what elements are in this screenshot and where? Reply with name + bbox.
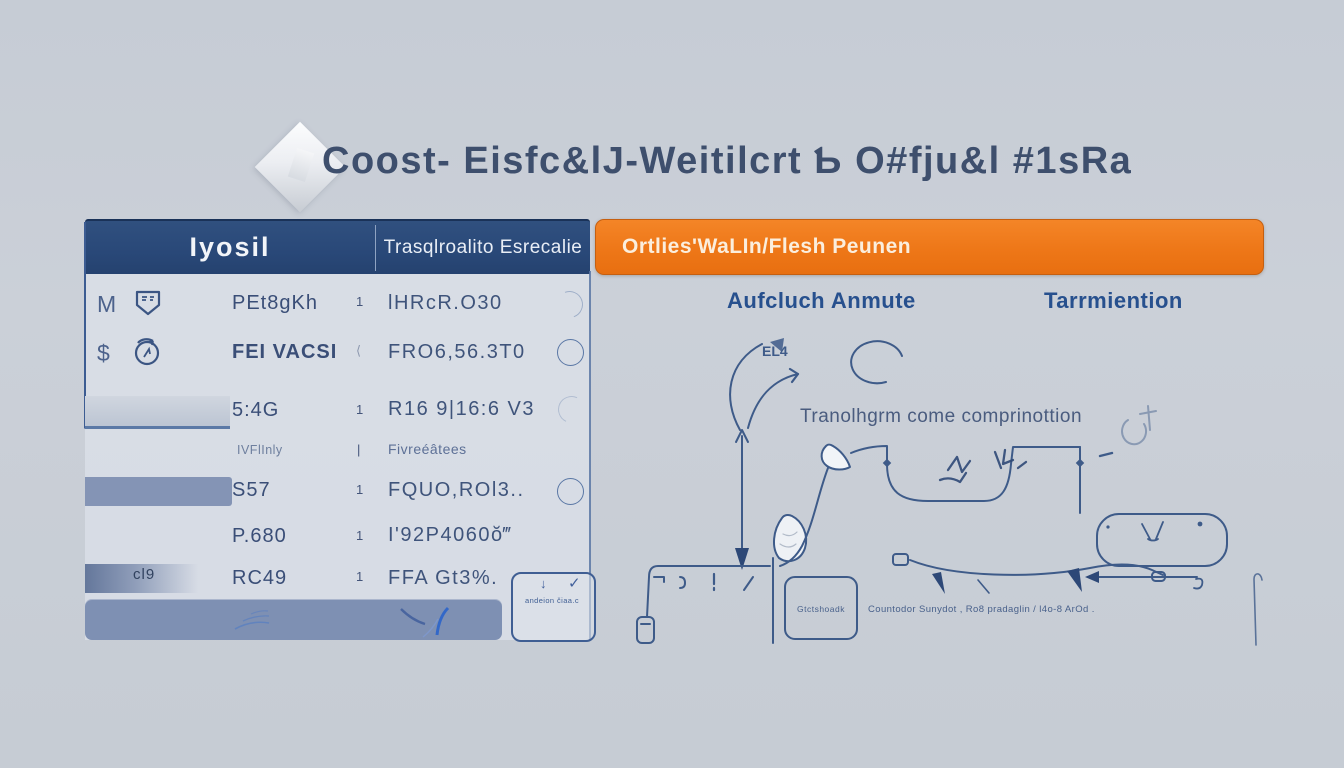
row-value: Fivreéâtees: [388, 441, 467, 457]
ink-scribbles: [940, 450, 1026, 482]
row-sep: 1: [356, 528, 363, 543]
note-box-text: andeion čiaa.c: [513, 596, 591, 605]
column-header-1: Aufcluch Anmute: [727, 288, 916, 314]
wavy-connector: [893, 554, 1163, 594]
open-circle: [851, 341, 902, 383]
check-icon: ✓: [568, 574, 581, 592]
pin-line: [1254, 574, 1262, 645]
timer-icon: [130, 335, 164, 369]
row5-radio[interactable]: [557, 478, 584, 505]
row5-progress-bar: [85, 477, 232, 506]
row-sep: 1: [356, 482, 363, 497]
row3-progress-bar: [85, 396, 230, 429]
row7-bar-label: cl9: [133, 566, 155, 583]
row2-radio[interactable]: [557, 339, 584, 366]
row-sep: ⟨: [356, 343, 361, 359]
row-value: FFA Gt3%.: [388, 567, 498, 590]
row1-letter: M: [97, 291, 116, 318]
row-name: IVFlInly: [237, 443, 283, 457]
scribble-icon: [1122, 406, 1156, 444]
under-pill-line: [1085, 571, 1202, 589]
row-value: FQUO,ROl3..: [388, 479, 525, 502]
row-name: 5:4G: [232, 399, 279, 422]
table-header: Iyosil Trasqlroalito Esrecalie: [85, 219, 590, 274]
diagram-footnote: Countodor Sunydot , Ro8 pradaglin / l4o-…: [868, 604, 1095, 615]
row-sep: 1: [356, 402, 363, 417]
row2-letter: $: [97, 340, 110, 367]
down-arrow-icon: ↓: [540, 576, 547, 591]
table-header-right: Trasqlroalito Esrecalie: [376, 237, 590, 259]
teardrop-shape: [822, 445, 850, 470]
white-blob: [774, 515, 806, 561]
arrow-label: EL4: [762, 343, 788, 359]
row-sep: 1: [356, 294, 363, 309]
row-name: FEI VACSI: [232, 341, 337, 364]
row-value: lHRcR.O30: [388, 292, 503, 315]
row-value: R16 9|16:6 V3: [388, 398, 535, 421]
row-name: S57: [232, 479, 271, 502]
table-footer-bar: [85, 599, 502, 640]
row-value: FRO6,56.3T0: [388, 341, 526, 364]
table-header-left: Iyosil: [85, 232, 375, 263]
row-name: PEt8gKh: [232, 292, 318, 315]
label-box-text: Gtctshoadk: [797, 604, 845, 614]
shield-icon: [133, 288, 163, 318]
column-header-2: Tarrmiention: [1044, 288, 1183, 314]
row-sep: |: [357, 442, 360, 457]
row-value: I'92P4060ŏ‴: [388, 524, 512, 547]
row-name: P.680: [232, 525, 287, 548]
row7-progress-bar: [85, 564, 230, 593]
row-name: RC49: [232, 567, 287, 590]
top-connectors: [851, 446, 1112, 513]
page-title: Coost- Eisfc&lJ-Weitilcrt Ƅ O#fju&l #1sR…: [322, 140, 1132, 183]
bottom-left-branch: [637, 558, 773, 643]
diagram-caption: Tranolhgrm come comprinottion: [800, 406, 1082, 427]
brush-squiggles: [85, 599, 502, 640]
orange-banner[interactable]: Ortlies'WaLIn/Flesh Peunen: [595, 219, 1264, 275]
orange-banner-label: Ortlies'WaLIn/Flesh Peunen: [622, 235, 911, 259]
note-box: [511, 572, 596, 642]
flowchart: EL4: [600, 330, 1300, 660]
row-sep: 1: [356, 569, 363, 584]
pill-box: [1097, 514, 1227, 566]
vertical-arrow: [735, 430, 749, 570]
